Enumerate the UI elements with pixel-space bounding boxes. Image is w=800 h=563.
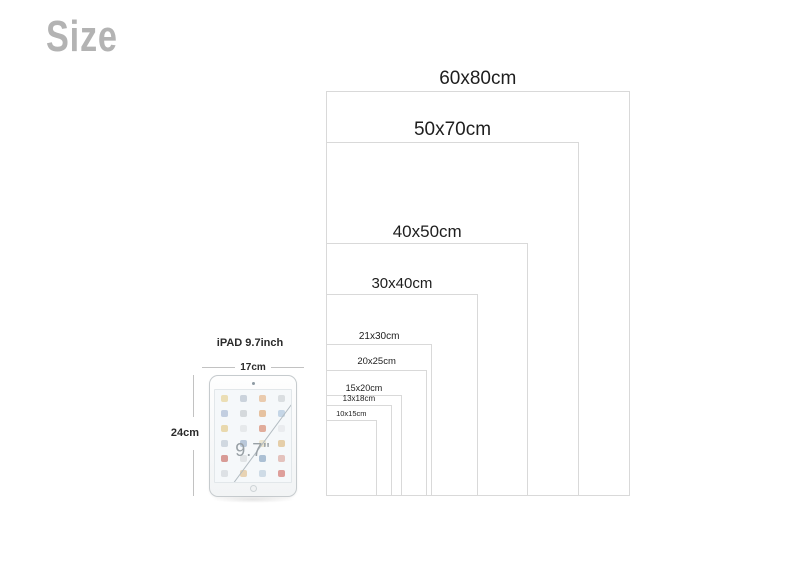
size-rect-10x15cm — [326, 420, 377, 496]
size-label-21x30cm: 21x30cm — [326, 329, 432, 344]
ipad-width-measure: 17cm — [202, 361, 304, 373]
ipad-name-label: iPAD 9.7inch — [190, 337, 310, 349]
home-button-icon — [250, 485, 257, 492]
app-icon — [221, 470, 228, 477]
app-icon — [221, 395, 228, 402]
app-icon — [259, 395, 266, 402]
app-icon — [278, 470, 285, 477]
app-icon — [278, 395, 285, 402]
size-label-30x40cm: 30x40cm — [326, 274, 478, 294]
size-label-10x15cm: 10x15cm — [326, 408, 377, 421]
size-label-60x80cm: 60x80cm — [326, 67, 630, 91]
camera-dot-icon — [252, 382, 255, 385]
size-label-13x18cm: 13x18cm — [326, 392, 392, 405]
app-icon — [221, 425, 228, 432]
ipad-shadow — [211, 496, 295, 503]
screen-size-label: 9.7" — [215, 440, 291, 461]
page-title: Size — [46, 12, 118, 62]
app-icon — [259, 410, 266, 417]
app-icons-grid — [221, 395, 285, 479]
app-icon — [259, 470, 266, 477]
ipad-screen: 9.7" — [214, 389, 292, 483]
size-label-20x25cm: 20x25cm — [326, 355, 427, 370]
measure-line-left — [202, 367, 235, 368]
ipad-height-label: 24cm — [162, 427, 208, 439]
size-label-50x70cm: 50x70cm — [326, 118, 579, 142]
measure-line-top — [193, 375, 194, 417]
app-icon — [278, 425, 285, 432]
app-icon — [259, 425, 266, 432]
app-icon — [240, 410, 247, 417]
ipad-width-label: 17cm — [235, 362, 271, 373]
ipad-illustration: 9.7" — [209, 375, 297, 497]
measure-line-right — [271, 367, 304, 368]
app-icon — [221, 410, 228, 417]
app-icon — [240, 395, 247, 402]
measure-line-bottom — [193, 450, 194, 496]
size-chart-canvas: Size 60x80cm50x70cm40x50cm30x40cm21x30cm… — [0, 0, 800, 563]
size-label-40x50cm: 40x50cm — [326, 221, 528, 243]
app-icon — [240, 425, 247, 432]
